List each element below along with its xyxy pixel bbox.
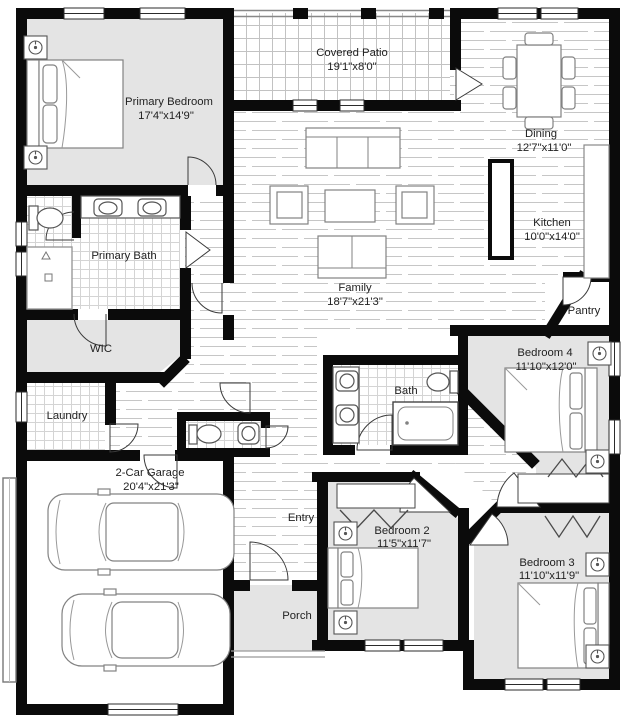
ceiling-fixture-icon — [586, 553, 609, 576]
coffee-table — [325, 190, 375, 222]
window — [16, 222, 27, 246]
wall-north-primary — [16, 8, 234, 19]
label-primary-bedroom: Primary Bedroom — [125, 96, 213, 108]
label-wic: WIC — [90, 343, 112, 355]
wall-pbath-east-a — [180, 196, 191, 230]
label-dining: Dining — [525, 128, 557, 140]
wall-bedroom4-west — [458, 325, 468, 393]
wall-primary-east — [223, 8, 234, 196]
wall-bedroom3-west-low — [463, 645, 474, 690]
window — [505, 679, 543, 690]
toilet-icon — [29, 206, 63, 230]
wall-bath-south-a — [323, 445, 355, 455]
window — [293, 100, 317, 111]
patio-post — [361, 8, 376, 19]
label-family: Family — [338, 282, 372, 294]
label-family-dims: 18'7"x21'3" — [327, 296, 383, 308]
wall-primary-south-b — [216, 185, 234, 196]
ceiling-fixture-icon — [586, 645, 609, 668]
bed-bedroom4 — [505, 368, 597, 452]
wall-hall-east-b — [223, 315, 234, 340]
window — [16, 252, 27, 276]
wall-laundry-east — [105, 383, 116, 425]
wall-wic-south — [16, 372, 167, 383]
ceiling-fixture-icon — [588, 342, 611, 365]
window — [16, 392, 27, 422]
wall-primary-south-a — [16, 185, 188, 196]
window — [108, 704, 178, 715]
chair — [503, 57, 516, 79]
chair — [525, 33, 553, 45]
label-kitchen-dims: 10'0"x14'0" — [524, 231, 580, 243]
label-garage-dims: 20'4"x21'3" — [123, 481, 179, 493]
label-primary-bath: Primary Bath — [91, 250, 156, 262]
wall-bath-south-b — [390, 445, 468, 455]
wall-garage-north-a — [16, 450, 140, 461]
label-pantry: Pantry — [568, 305, 601, 317]
wall-bath-north — [323, 355, 468, 365]
wall-garage-east — [223, 450, 234, 715]
label-covered-patio-dims: 19'1"x8'0" — [327, 61, 376, 73]
label-bedroom4-dims: 11'10"x12'0" — [515, 361, 576, 373]
wall-hall-east-a — [223, 196, 234, 283]
label-kitchen: Kitchen — [533, 217, 571, 229]
kitchen-counter — [584, 145, 609, 278]
window — [365, 640, 400, 651]
wall-bedroom2-3 — [458, 508, 469, 648]
bed-primary — [27, 60, 123, 148]
wall-bedroom4-north — [450, 325, 620, 336]
label-primary-bedroom-dims: 17'4"x14'9" — [138, 110, 194, 122]
label-covered-patio: Covered Patio — [316, 47, 388, 59]
wall-powder-south — [177, 448, 270, 457]
window — [609, 420, 620, 454]
window — [140, 8, 185, 19]
ceiling-fixture-icon — [334, 611, 357, 634]
wall-west — [16, 8, 27, 715]
chair — [562, 57, 575, 79]
label-garage: 2-Car Garage — [115, 467, 184, 479]
label-dining-dims: 12'7"x11'0" — [517, 142, 572, 154]
label-bedroom2: Bedroom 2 — [374, 525, 429, 537]
ceiling-fixture-icon — [24, 36, 47, 59]
label-bedroom4: Bedroom 4 — [517, 347, 572, 359]
ceiling-fixture-icon — [24, 146, 47, 169]
car — [62, 589, 230, 671]
armchair — [270, 186, 308, 224]
window — [64, 8, 104, 19]
wall-bedroom2-west — [317, 472, 328, 651]
wall-powder-north — [177, 412, 270, 421]
bathtub — [393, 402, 458, 445]
floor-plan-page: Primary Bedroom 17'4"x14'9" Covered Pati… — [0, 0, 627, 727]
car — [48, 489, 234, 575]
armchair — [396, 186, 434, 224]
window — [498, 8, 537, 19]
chair — [503, 87, 516, 109]
window — [547, 679, 580, 690]
label-bath: Bath — [394, 385, 417, 397]
shower — [27, 247, 72, 309]
ceiling-fixture-icon — [586, 450, 609, 473]
wall-bath-west — [323, 355, 333, 455]
wall-bath-wic-a — [16, 309, 78, 320]
wall-bath-wic-b — [108, 309, 185, 320]
loveseat — [318, 236, 386, 278]
label-porch: Porch — [282, 610, 312, 622]
toilet-icon — [189, 425, 197, 444]
label-laundry: Laundry — [47, 410, 88, 422]
wall-bedroom2-north — [312, 472, 420, 482]
sofa — [306, 128, 400, 168]
wall-wic-east — [180, 309, 191, 359]
label-bedroom2-dims: 11'5"x11'7" — [377, 538, 431, 550]
patio-post — [429, 8, 444, 19]
patio-post — [293, 8, 308, 19]
ceiling-fixture-icon — [334, 522, 357, 545]
label-entry: Entry — [288, 512, 315, 524]
wall-front-b — [292, 580, 317, 591]
wall-toilet-nook — [72, 196, 81, 238]
floor-plan: Primary Bedroom 17'4"x14'9" Covered Pati… — [0, 0, 627, 727]
kitchen-island — [490, 161, 512, 258]
label-bedroom3-dims: 11'10"x11'9" — [519, 570, 579, 582]
window — [541, 8, 578, 19]
wall-front-a — [234, 580, 250, 591]
label-bedroom3: Bedroom 3 — [519, 557, 574, 569]
window — [340, 100, 364, 111]
chair — [562, 87, 575, 109]
bed-bedroom2 — [328, 548, 418, 608]
window — [404, 640, 443, 651]
toilet-icon — [427, 371, 458, 393]
